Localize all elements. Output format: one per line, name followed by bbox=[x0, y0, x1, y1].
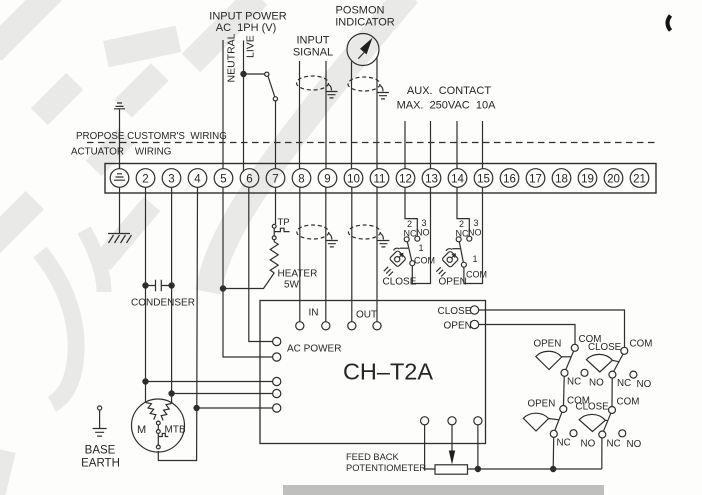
svg-text:M: M bbox=[137, 424, 146, 436]
svg-text:17: 17 bbox=[529, 173, 542, 185]
svg-text:CLOSE: CLOSE bbox=[576, 402, 610, 413]
svg-text:NC: NC bbox=[617, 378, 631, 389]
svg-text:AC 1PH (V): AC 1PH (V) bbox=[216, 22, 277, 34]
svg-text:SIGNAL: SIGNAL bbox=[293, 47, 333, 59]
svg-text:11: 11 bbox=[374, 173, 386, 185]
svg-text:OUT: OUT bbox=[356, 310, 377, 321]
svg-text:OPEN: OPEN bbox=[439, 277, 467, 288]
svg-text:NC: NC bbox=[607, 439, 621, 450]
svg-text:21: 21 bbox=[633, 173, 646, 185]
svg-text:NO: NO bbox=[627, 439, 642, 450]
svg-text:15: 15 bbox=[477, 173, 490, 185]
svg-text:OPEN: OPEN bbox=[528, 399, 556, 410]
svg-text:PROPOSE CUSTOMR'S WIRING: PROPOSE CUSTOMR'S WIRING bbox=[76, 131, 227, 142]
svg-text:4: 4 bbox=[194, 173, 201, 185]
svg-text:7: 7 bbox=[272, 173, 278, 185]
svg-text:NC: NC bbox=[456, 229, 469, 239]
svg-text:COM: COM bbox=[630, 339, 653, 350]
svg-text:5: 5 bbox=[220, 173, 226, 185]
svg-text:TP: TP bbox=[278, 217, 290, 228]
svg-text:COM: COM bbox=[414, 256, 435, 266]
svg-text:CH–T2A: CH–T2A bbox=[343, 359, 433, 385]
svg-text:INPUT POWER: INPUT POWER bbox=[209, 11, 286, 23]
svg-text:12: 12 bbox=[399, 173, 412, 185]
svg-text:NO: NO bbox=[637, 379, 652, 390]
svg-text:FEED BACK: FEED BACK bbox=[346, 452, 399, 462]
svg-text:2: 2 bbox=[142, 173, 148, 185]
svg-text:9: 9 bbox=[324, 173, 330, 185]
svg-text:OPEN: OPEN bbox=[444, 320, 472, 331]
svg-text:ACTUATOR WIRING: ACTUATOR WIRING bbox=[71, 147, 171, 158]
svg-text:COM: COM bbox=[466, 270, 487, 280]
svg-text:NC: NC bbox=[567, 377, 581, 388]
svg-text:AUX. CONTACT: AUX. CONTACT bbox=[407, 85, 491, 97]
svg-text:COM: COM bbox=[617, 397, 640, 408]
svg-text:INDICATOR: INDICATOR bbox=[335, 17, 395, 29]
svg-text:8: 8 bbox=[298, 173, 304, 185]
svg-text:CONDENSER: CONDENSER bbox=[131, 298, 195, 309]
svg-text:2: 2 bbox=[459, 219, 464, 229]
svg-text:5W: 5W bbox=[284, 280, 300, 291]
svg-text:POTENTIOMETER: POTENTIOMETER bbox=[346, 463, 426, 473]
svg-text:NO: NO bbox=[589, 378, 604, 389]
svg-text:1: 1 bbox=[473, 254, 478, 264]
svg-text:NO: NO bbox=[468, 228, 482, 238]
svg-text:HEATER: HEATER bbox=[278, 269, 318, 280]
svg-text:13: 13 bbox=[425, 173, 438, 185]
svg-text:LIVE: LIVE bbox=[245, 35, 257, 58]
svg-text:1: 1 bbox=[419, 243, 424, 253]
svg-text:NO: NO bbox=[416, 228, 430, 238]
svg-text:NC: NC bbox=[404, 229, 417, 239]
svg-text:OPEN: OPEN bbox=[534, 339, 562, 350]
svg-text:16: 16 bbox=[503, 173, 516, 185]
svg-text:EARTH: EARTH bbox=[81, 458, 120, 470]
svg-text:CLOSE: CLOSE bbox=[438, 306, 472, 317]
svg-text:POSMON: POSMON bbox=[336, 5, 385, 17]
svg-text:20: 20 bbox=[607, 173, 620, 185]
svg-text:3: 3 bbox=[422, 218, 427, 228]
svg-text:IN: IN bbox=[309, 308, 319, 319]
svg-text:6: 6 bbox=[246, 173, 252, 185]
svg-text:NO: NO bbox=[581, 439, 596, 450]
svg-text:3: 3 bbox=[168, 173, 174, 185]
svg-text:NEUTRAL: NEUTRAL bbox=[226, 33, 238, 82]
svg-text:MTB: MTB bbox=[165, 425, 186, 436]
svg-text:NC: NC bbox=[557, 438, 571, 449]
svg-text:CLOSE: CLOSE bbox=[383, 277, 417, 288]
svg-text:19: 19 bbox=[581, 173, 594, 185]
svg-text:2: 2 bbox=[407, 219, 412, 229]
svg-text:14: 14 bbox=[451, 173, 464, 185]
svg-text:AC POWER: AC POWER bbox=[287, 344, 341, 355]
svg-text:10: 10 bbox=[347, 173, 360, 185]
svg-text:18: 18 bbox=[555, 173, 568, 185]
svg-text:BASE: BASE bbox=[85, 445, 116, 457]
svg-text:MAX. 250VAC 10A: MAX. 250VAC 10A bbox=[397, 100, 497, 112]
svg-text:CLOSE: CLOSE bbox=[588, 342, 622, 353]
svg-text:3: 3 bbox=[474, 218, 479, 228]
svg-text:INPUT: INPUT bbox=[297, 35, 330, 47]
